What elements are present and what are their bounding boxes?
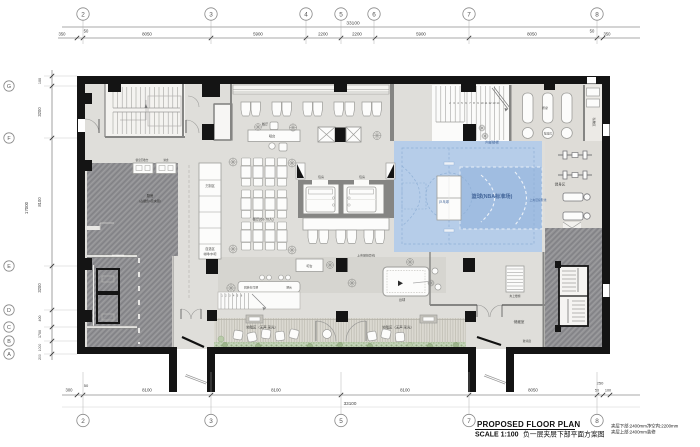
svg-text:33100: 33100 bbox=[344, 401, 357, 406]
svg-text:熟食: 熟食 bbox=[163, 158, 169, 162]
svg-text:8050: 8050 bbox=[142, 32, 152, 37]
svg-text:200: 200 bbox=[38, 354, 42, 360]
svg-text:1700: 1700 bbox=[38, 330, 42, 338]
svg-text:台球: 台球 bbox=[399, 297, 406, 302]
svg-text:8050: 8050 bbox=[528, 388, 538, 393]
svg-text:夹层下部:2400mm净空内:2200mm: 夹层下部:2400mm净空内:2200mm bbox=[611, 423, 679, 430]
svg-text:私教区: 私教区 bbox=[592, 117, 597, 126]
svg-text:乒乓球: 乒乓球 bbox=[439, 199, 450, 204]
svg-text:6: 6 bbox=[372, 11, 376, 18]
svg-text:2: 2 bbox=[81, 418, 85, 425]
svg-text:餐厅(60-70人): 餐厅(60-70人) bbox=[252, 217, 273, 222]
svg-text:8100: 8100 bbox=[400, 388, 410, 393]
svg-text:3200: 3200 bbox=[37, 283, 42, 293]
svg-text:1000: 1000 bbox=[38, 344, 42, 352]
svg-text:100: 100 bbox=[38, 78, 42, 84]
svg-text:5: 5 bbox=[339, 418, 343, 425]
svg-text:5: 5 bbox=[339, 11, 343, 18]
svg-text:包房: 包房 bbox=[359, 174, 365, 179]
svg-text:B: B bbox=[7, 339, 11, 345]
svg-text:350: 350 bbox=[604, 32, 612, 37]
svg-text:33100: 33100 bbox=[346, 21, 360, 27]
svg-text:PROPOSED FLOOR PLAN: PROPOSED FLOOR PLAN bbox=[477, 420, 580, 429]
svg-text:350: 350 bbox=[59, 32, 67, 37]
svg-text:自选区: 自选区 bbox=[205, 246, 215, 251]
svg-text:夹上楼梯: 夹上楼梯 bbox=[509, 294, 520, 298]
svg-text:储藏室: 储藏室 bbox=[514, 319, 525, 324]
svg-text:5900: 5900 bbox=[253, 32, 263, 37]
svg-text:SCALE 1:100: SCALE 1:100 bbox=[475, 432, 519, 439]
svg-text:3200: 3200 bbox=[37, 107, 42, 117]
svg-text:8100: 8100 bbox=[37, 197, 42, 207]
svg-text:300: 300 bbox=[66, 388, 74, 393]
svg-text:G: G bbox=[7, 84, 11, 90]
svg-text:E: E bbox=[7, 264, 11, 270]
svg-text:地毯区（无声 采光）: 地毯区（无声 采光） bbox=[246, 325, 277, 330]
svg-text:回转寿司吧: 回转寿司吧 bbox=[244, 286, 258, 290]
svg-text:地毯区（无声 采光）: 地毯区（无声 采光） bbox=[382, 325, 413, 330]
svg-text:8100: 8100 bbox=[142, 388, 152, 393]
svg-text:7: 7 bbox=[467, 11, 471, 18]
svg-text:C: C bbox=[7, 325, 11, 331]
svg-text:吧台: 吧台 bbox=[269, 134, 275, 139]
svg-text:按摩房: 按摩房 bbox=[544, 132, 553, 136]
svg-text:2200: 2200 bbox=[352, 32, 362, 37]
svg-text:上夹层投影线: 上夹层投影线 bbox=[530, 198, 547, 202]
svg-text:50: 50 bbox=[84, 383, 89, 388]
svg-text:2: 2 bbox=[81, 11, 85, 18]
svg-text:玻璃窗: 玻璃窗 bbox=[523, 339, 532, 343]
svg-text:4: 4 bbox=[304, 11, 308, 18]
svg-text:8050: 8050 bbox=[527, 32, 537, 37]
svg-text:吧台: 吧台 bbox=[286, 286, 292, 290]
svg-text:100: 100 bbox=[605, 389, 611, 393]
svg-text:上夹层投影线: 上夹层投影线 bbox=[357, 253, 375, 258]
svg-text:篮球(NBA标准场): 篮球(NBA标准场) bbox=[471, 192, 513, 200]
svg-text:负一层夹层下部平面方案图: 负一层夹层下部平面方案图 bbox=[523, 430, 605, 439]
svg-text:夹层上部:2400mm装修: 夹层上部:2400mm装修 bbox=[611, 429, 656, 436]
svg-text:250: 250 bbox=[597, 381, 604, 386]
svg-text:(占据负1及夹层): (占据负1及夹层) bbox=[139, 198, 161, 203]
svg-text:3: 3 bbox=[209, 11, 213, 18]
svg-text:50: 50 bbox=[590, 29, 595, 34]
svg-text:7: 7 bbox=[467, 418, 471, 425]
svg-text:5900: 5900 bbox=[416, 32, 426, 37]
svg-text:50: 50 bbox=[84, 29, 89, 34]
svg-text:按摩: 按摩 bbox=[542, 105, 548, 110]
svg-text:A: A bbox=[7, 352, 11, 358]
svg-text:3: 3 bbox=[209, 418, 213, 425]
svg-text:8: 8 bbox=[595, 418, 599, 425]
svg-text:内部楼梯: 内部楼梯 bbox=[485, 140, 499, 145]
svg-text:400: 400 bbox=[38, 316, 42, 322]
svg-text:234567891011121314: 234567891011121314 bbox=[449, 101, 500, 105]
svg-text:8100: 8100 bbox=[271, 388, 281, 393]
svg-text:D: D bbox=[7, 308, 11, 314]
svg-text:2200: 2200 bbox=[318, 32, 328, 37]
svg-text:餐盘回收台: 餐盘回收台 bbox=[136, 158, 149, 162]
svg-text:厨房: 厨房 bbox=[147, 193, 154, 198]
svg-text:8: 8 bbox=[595, 11, 599, 18]
svg-text:咖啡/水吧: 咖啡/水吧 bbox=[204, 251, 217, 256]
svg-text:包房: 包房 bbox=[318, 174, 324, 179]
svg-text:健身区: 健身区 bbox=[555, 182, 566, 187]
svg-text:餐厅: 餐厅 bbox=[262, 122, 269, 127]
svg-text:17000: 17000 bbox=[24, 201, 29, 214]
svg-text:烹制区: 烹制区 bbox=[205, 183, 215, 188]
svg-text:吧台: 吧台 bbox=[306, 263, 312, 268]
